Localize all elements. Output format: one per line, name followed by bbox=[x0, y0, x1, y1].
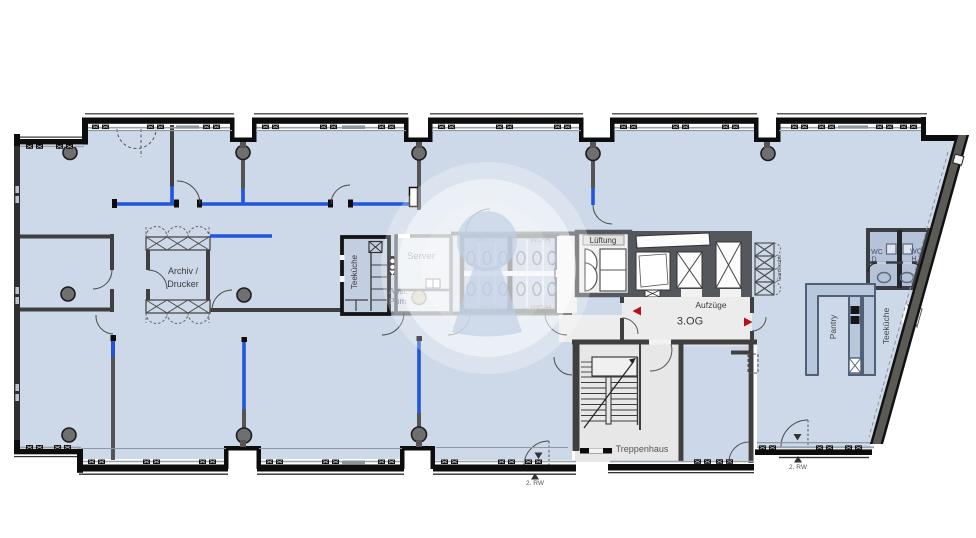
svg-text:Pantry: Pantry bbox=[828, 314, 838, 339]
svg-text:Teeküche: Teeküche bbox=[350, 254, 359, 289]
svg-text:Archiv /: Archiv / bbox=[168, 266, 199, 276]
svg-text:Garderobe: Garderobe bbox=[777, 255, 783, 281]
svg-text:2. RW: 2. RW bbox=[526, 480, 545, 487]
svg-text:Lüftung: Lüftung bbox=[590, 236, 617, 245]
svg-text:H: H bbox=[911, 256, 916, 263]
svg-text:D: D bbox=[871, 257, 876, 264]
svg-text:Treppenhaus: Treppenhaus bbox=[616, 444, 669, 454]
svg-text:Drucker: Drucker bbox=[167, 279, 199, 289]
svg-text:3.OG: 3.OG bbox=[677, 316, 703, 328]
svg-text:Aufzüge: Aufzüge bbox=[695, 300, 726, 310]
svg-text:2. RW: 2. RW bbox=[789, 464, 808, 471]
svg-text:WC: WC bbox=[910, 249, 922, 256]
svg-text:Teeküche: Teeküche bbox=[881, 308, 891, 345]
svg-text:WC: WC bbox=[871, 249, 883, 256]
